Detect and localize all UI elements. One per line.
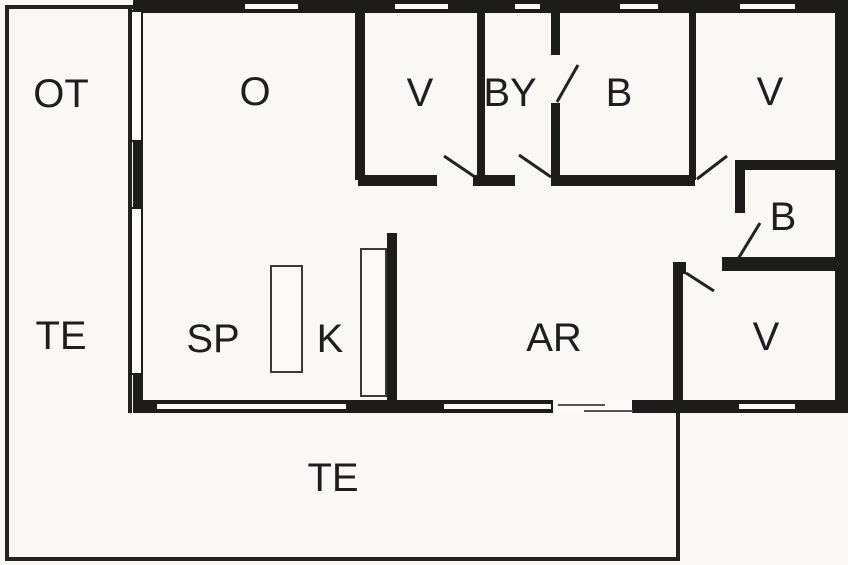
chimney (270, 265, 303, 373)
window-top-by (513, 2, 542, 11)
room-label-ot: OT (33, 74, 89, 114)
wall-by-b1-upper (551, 13, 560, 55)
wall-v2-bottom (735, 160, 848, 170)
wall-rooms-bottom-by (473, 175, 515, 186)
room-label-v1: V (407, 73, 434, 113)
door-swing-v3 (686, 273, 714, 291)
sliding-door-leaf-1 (558, 404, 605, 406)
wall-rooms-bottom-b1 (551, 175, 695, 186)
wall-outer-right (835, 0, 848, 413)
room-label-b1: B (606, 73, 633, 113)
wall-by-b1-lower (551, 103, 560, 180)
sliding-door-leaf-2 (584, 410, 633, 412)
window-top-v2 (738, 2, 797, 11)
wall-k-ar (387, 233, 397, 400)
kitchen-counter (360, 248, 387, 397)
room-label-by: BY (483, 73, 536, 113)
room-label-b2: B (770, 197, 797, 237)
wall-v3-left (673, 274, 683, 403)
window-left-upper (130, 10, 143, 142)
window-bottom-v3 (737, 402, 797, 411)
door-swing-v1 (444, 156, 475, 177)
terrace-outline-top (5, 5, 133, 9)
wall-b2-left (735, 160, 745, 213)
room-label-v3: V (753, 317, 780, 357)
door-swing-b2 (738, 223, 760, 259)
window-top-b1 (618, 2, 660, 11)
door-swing-by (519, 155, 551, 177)
window-bottom-sp (155, 402, 348, 411)
room-label-k: K (317, 319, 344, 359)
terrace-outline-bottom (5, 557, 680, 561)
window-top-v1 (393, 2, 450, 11)
floor-plan: OT O V BY B V B TE SP K AR V TE (0, 0, 848, 565)
room-label-te-bottom: TE (307, 458, 358, 498)
room-label-te-left: TE (35, 316, 86, 356)
room-label-ar: AR (526, 318, 582, 358)
terrace-outline-right (676, 411, 680, 561)
wall-v3-corner (673, 262, 686, 274)
terrace-outline-left (5, 5, 9, 561)
wall-b1-v2 (689, 13, 696, 180)
door-swing-v2 (697, 156, 727, 179)
window-bottom-ar (442, 402, 553, 411)
wall-b2-bottom (722, 257, 848, 271)
wall-rooms-bottom-v1 (358, 175, 437, 186)
room-label-o: O (239, 72, 270, 112)
window-left-lower (130, 207, 143, 375)
room-label-sp: SP (186, 319, 239, 359)
door-swing-b1 (557, 65, 578, 102)
window-top-o (243, 2, 300, 11)
room-label-v2: V (757, 72, 784, 112)
wall-o-v1 (355, 13, 365, 180)
